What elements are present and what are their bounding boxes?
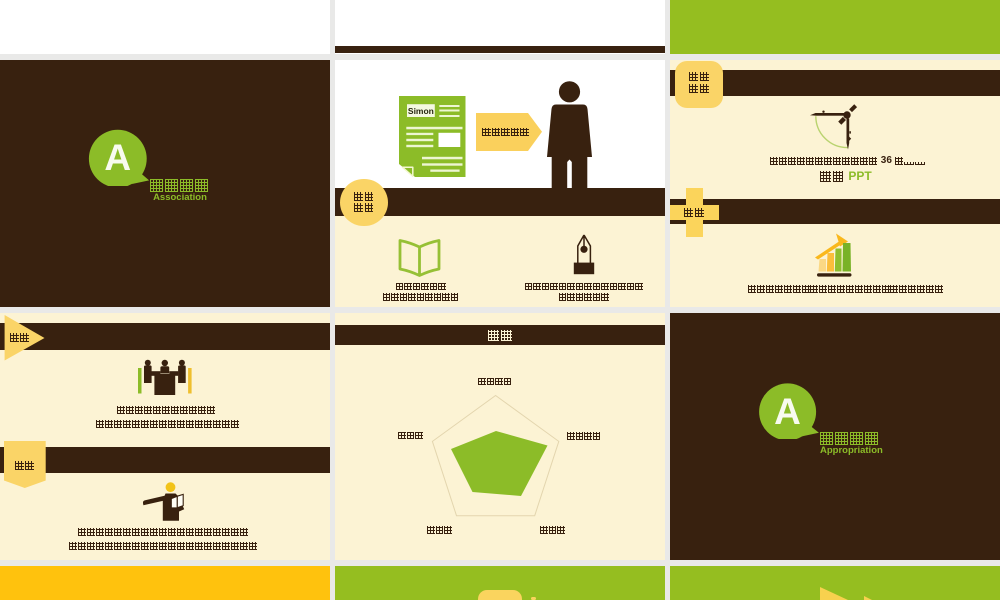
svg-text:Simon: Simon [408, 106, 434, 116]
